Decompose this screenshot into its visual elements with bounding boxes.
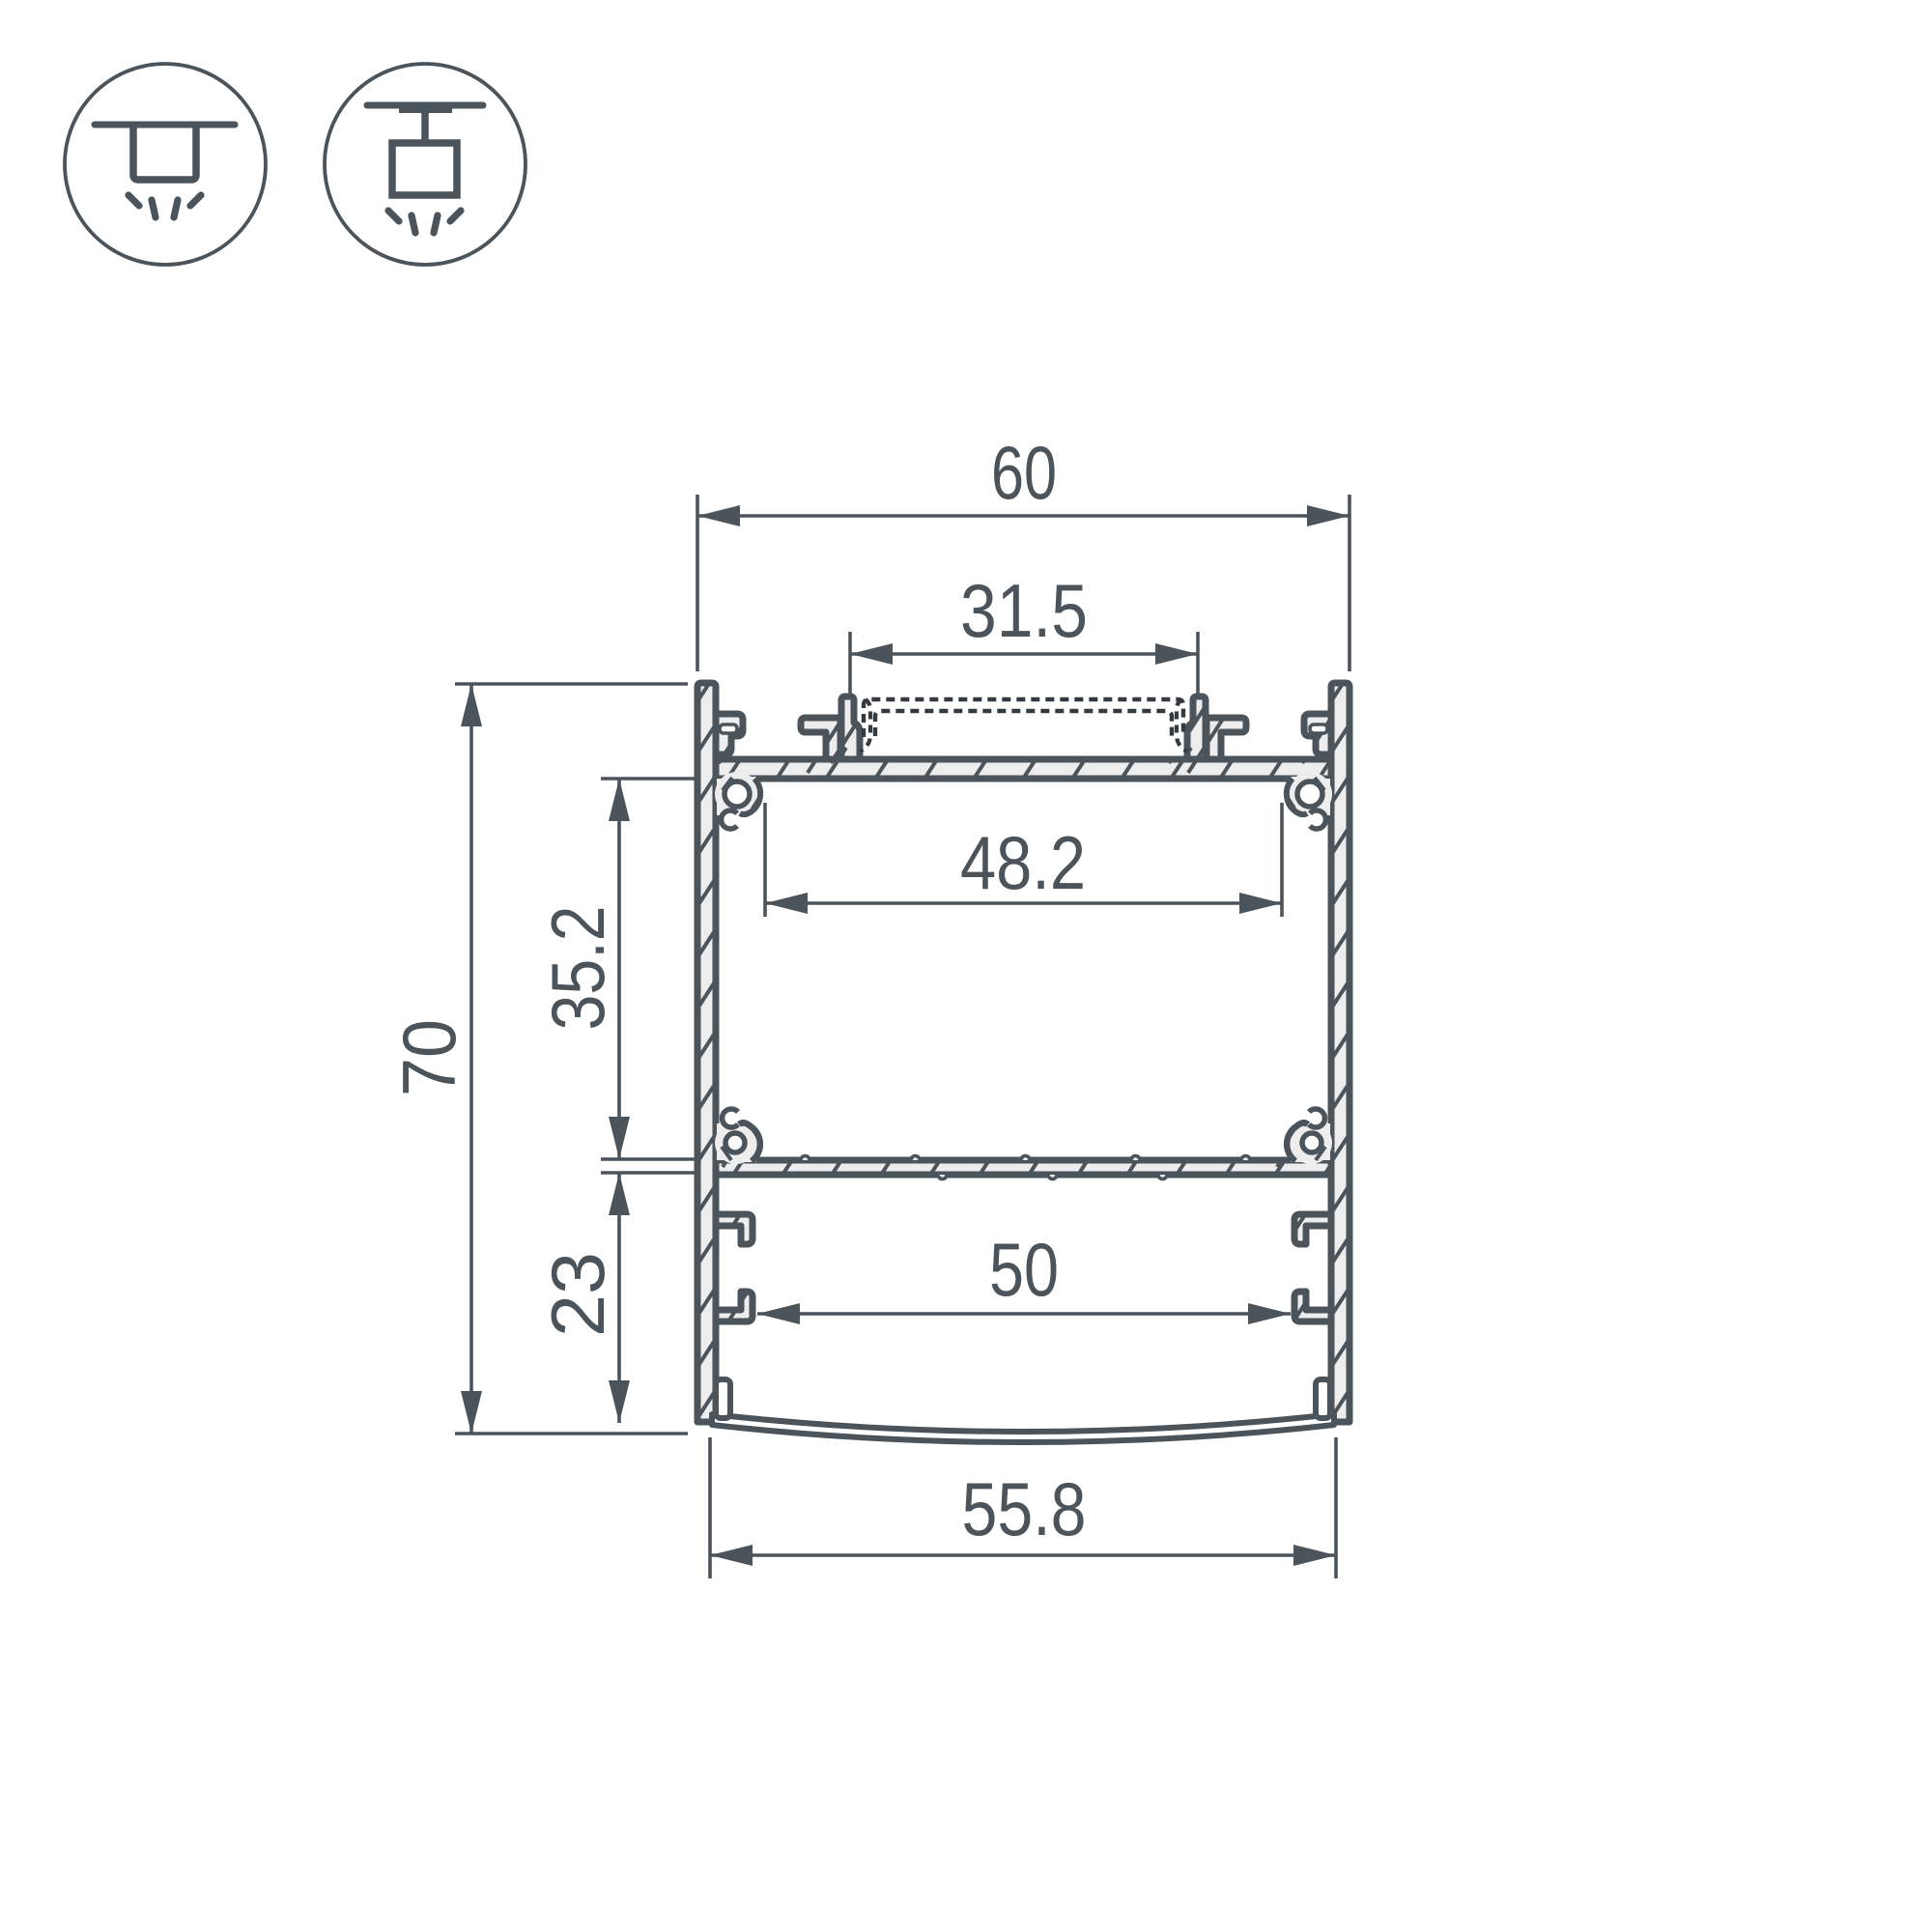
svg-text:70: 70 xyxy=(386,1019,471,1096)
svg-text:50: 50 xyxy=(989,1227,1059,1312)
svg-text:55.8: 55.8 xyxy=(962,1466,1087,1551)
svg-text:48.2: 48.2 xyxy=(960,820,1086,905)
svg-text:23: 23 xyxy=(535,1252,620,1337)
svg-text:60: 60 xyxy=(991,430,1057,515)
svg-text:31.5: 31.5 xyxy=(960,568,1088,653)
svg-text:35.2: 35.2 xyxy=(535,906,620,1031)
